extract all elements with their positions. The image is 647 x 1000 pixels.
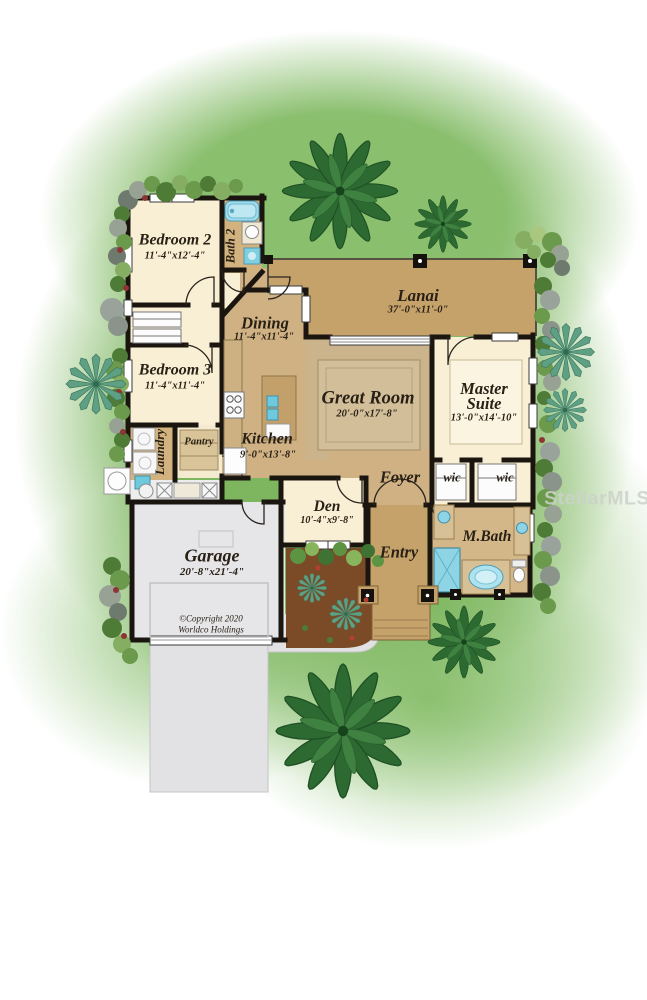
floor-plan-image: Bedroom 2 11'-4"x12'-4" Bath 2 Lanai 37'…: [0, 0, 647, 1000]
shrub-border-left: [66, 206, 132, 462]
sink-icon: [246, 226, 259, 239]
room-label-kitchen: Kitchen: [241, 432, 293, 449]
room-label-master-bath: M.Bath: [463, 529, 512, 545]
stellar-mls-watermark: StellarMLS: [544, 488, 647, 511]
water-heater-icon: [139, 484, 153, 498]
room-label-bedroom3: Bedroom 3: [139, 363, 211, 380]
room-dims-bedroom2: 11'-4"x12'-4": [145, 250, 206, 261]
room-label-garage: Garage: [185, 547, 240, 566]
room-label-foyer: Foyer: [380, 468, 420, 485]
room-dims-dining: 11'-4"x11'-4": [234, 331, 294, 342]
palm-tree-top: [282, 133, 397, 248]
room-label-great-room: Great Room: [321, 389, 414, 408]
room-label-lanai: Lanai: [397, 287, 439, 305]
room-label-den: Den: [314, 499, 341, 515]
palm-tree-top-small: [415, 196, 472, 253]
island-sink-icon: [267, 396, 278, 407]
room-label-wic-left: wic: [443, 471, 460, 484]
room-label-entry: Entry: [380, 543, 419, 560]
room-dims-bedroom3: 11'-4"x11'-4": [145, 380, 205, 391]
toilet-icon: [514, 568, 525, 582]
room-dims-kitchen: 9'-0"x13'-8": [240, 449, 296, 460]
room-label-laundry: Laundry: [153, 429, 167, 475]
room-dims-garage: 20'-8"x21'-4": [180, 567, 244, 579]
room-label-pantry: Pantry: [184, 436, 213, 447]
room-label-wic-right: wic: [496, 471, 513, 484]
room-dims-den: 10'-4"x9'-8": [300, 516, 353, 527]
sliding-glass-door: [330, 336, 430, 345]
copyright-line2: Worldco Holdings: [178, 625, 243, 634]
sink-icon: [438, 511, 450, 523]
room-label-master-suite: Master Suite: [445, 381, 523, 411]
palm-tree-right: [428, 606, 500, 678]
room-label-dining: Dining: [241, 314, 289, 331]
stove-icon: [224, 392, 244, 418]
palm-tree-bottom: [276, 664, 410, 798]
room-dims-master-suite: 13'-0"x14'-10": [451, 412, 518, 423]
sink-icon: [517, 523, 528, 534]
room-dims-great-room: 20'-0"x17'-8": [336, 408, 397, 419]
room-dims-lanai: 37'-0"x11'-0": [388, 304, 449, 315]
room-label-bedroom2: Bedroom 2: [139, 233, 211, 250]
copyright-line1: ©Copyright 2020: [179, 614, 243, 623]
room-label-bath2: Bath 2: [224, 229, 237, 263]
ac-pad: [104, 468, 130, 494]
